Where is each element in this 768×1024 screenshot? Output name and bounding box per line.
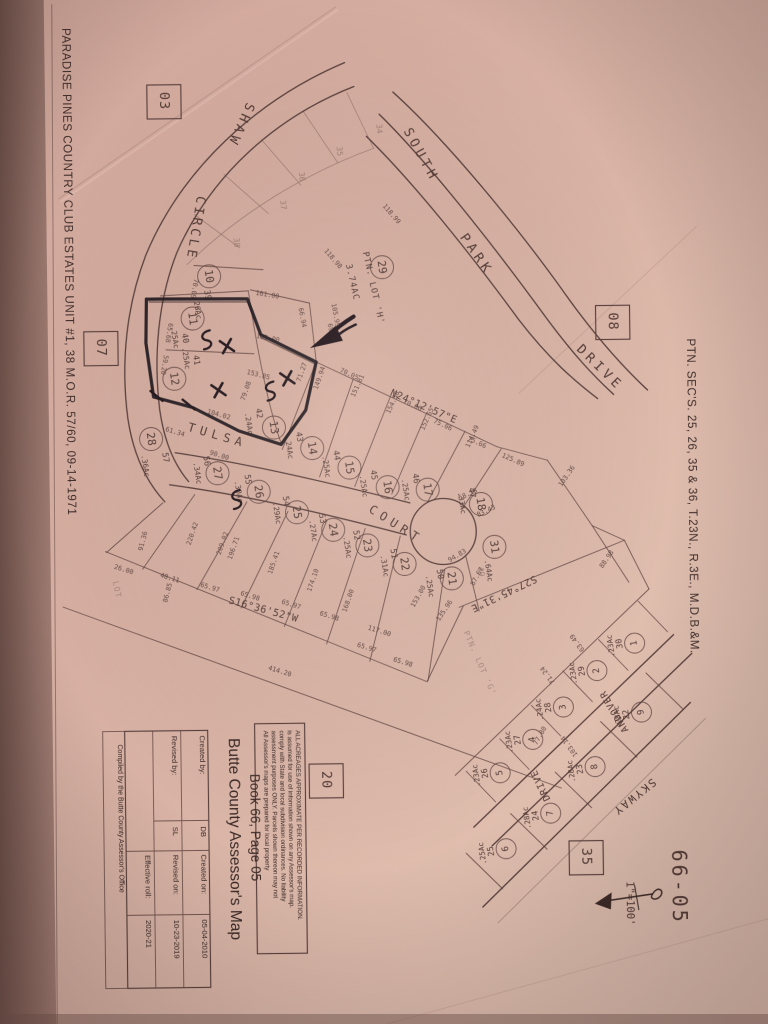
photo-vignette bbox=[0, 0, 768, 1024]
scanned-assessor-map-photo: PARADISE PINES COUNTRY CLUB ESTATES UNIT… bbox=[0, 0, 768, 1024]
map-canvas: PARADISE PINES COUNTRY CLUB ESTATES UNIT… bbox=[0, 0, 768, 1024]
